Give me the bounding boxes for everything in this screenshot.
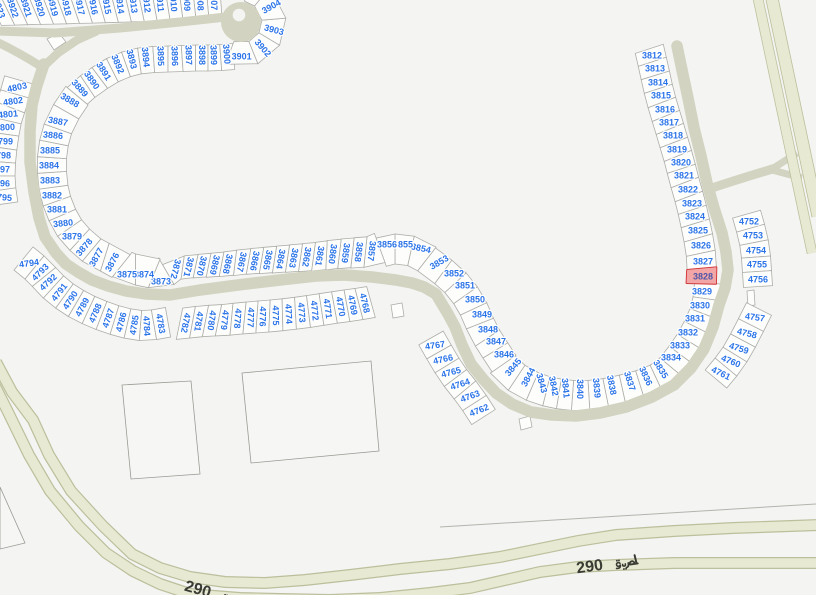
- svg-text:3883: 3883: [40, 175, 60, 185]
- svg-text:4797: 4797: [0, 164, 10, 174]
- svg-text:4773: 4773: [296, 302, 307, 323]
- svg-text:3814: 3814: [648, 77, 668, 87]
- svg-text:3849: 3849: [472, 309, 492, 319]
- svg-text:4784: 4784: [141, 316, 152, 337]
- svg-text:4753: 4753: [743, 230, 763, 240]
- svg-text:4795: 4795: [0, 191, 12, 203]
- svg-text:4752: 4752: [739, 216, 759, 226]
- svg-text:4778: 4778: [232, 308, 243, 329]
- svg-text:3911: 3911: [154, 0, 166, 12]
- svg-text:3899: 3899: [208, 45, 219, 65]
- svg-text:3856: 3856: [377, 239, 397, 249]
- svg-text:3846: 3846: [494, 349, 514, 359]
- svg-text:3908: 3908: [195, 0, 205, 11]
- svg-text:3886: 3886: [43, 129, 64, 141]
- svg-text:4777: 4777: [245, 307, 256, 327]
- svg-text:3823: 3823: [682, 198, 702, 208]
- svg-text:3901: 3901: [232, 51, 252, 61]
- svg-text:3826: 3826: [691, 240, 711, 250]
- svg-text:3824: 3824: [685, 211, 705, 221]
- svg-text:3829: 3829: [692, 286, 712, 296]
- svg-text:3875: 3875: [117, 269, 137, 279]
- svg-text:3851: 3851: [455, 280, 475, 290]
- svg-text:3817: 3817: [659, 117, 679, 127]
- svg-text:3822: 3822: [678, 184, 698, 194]
- svg-text:4775: 4775: [271, 305, 281, 325]
- svg-text:3881: 3881: [47, 204, 67, 214]
- svg-text:4796: 4796: [0, 178, 10, 189]
- svg-text:4798: 4798: [0, 150, 11, 160]
- svg-text:3848: 3848: [478, 324, 498, 334]
- svg-text:3898: 3898: [197, 45, 207, 65]
- svg-text:4776: 4776: [258, 306, 268, 326]
- svg-text:4754: 4754: [746, 245, 766, 255]
- svg-text:4800: 4800: [0, 122, 15, 133]
- svg-text:3852: 3852: [444, 268, 464, 278]
- svg-text:3895: 3895: [155, 46, 166, 66]
- svg-text:4779: 4779: [219, 309, 231, 330]
- svg-text:3840: 3840: [575, 379, 585, 399]
- svg-text:4772: 4772: [309, 300, 321, 321]
- svg-text:3850: 3850: [465, 294, 485, 304]
- svg-text:3833: 3833: [670, 340, 690, 350]
- svg-text:3847: 3847: [486, 336, 506, 346]
- svg-text:3884: 3884: [39, 160, 59, 170]
- svg-text:4774: 4774: [283, 304, 294, 325]
- svg-text:4801: 4801: [0, 108, 18, 120]
- svg-text:3819: 3819: [667, 144, 687, 154]
- svg-text:3828: 3828: [693, 271, 713, 281]
- svg-text:3880: 3880: [53, 217, 74, 229]
- svg-text:3815: 3815: [651, 90, 671, 100]
- svg-text:3832: 3832: [678, 327, 698, 337]
- svg-text:3825: 3825: [688, 225, 708, 235]
- svg-text:3896: 3896: [169, 46, 180, 66]
- svg-text:3818: 3818: [663, 130, 683, 140]
- svg-text:3885: 3885: [40, 145, 60, 155]
- svg-text:3909: 3909: [182, 0, 193, 11]
- svg-text:3910: 3910: [168, 0, 179, 12]
- svg-text:3907: 3907: [209, 0, 219, 10]
- svg-text:3812: 3812: [642, 50, 662, 60]
- svg-text:3882: 3882: [42, 190, 62, 200]
- svg-text:4799: 4799: [0, 136, 13, 146]
- svg-text:3831: 3831: [685, 313, 705, 323]
- svg-text:3830: 3830: [690, 300, 710, 310]
- svg-text:3894: 3894: [140, 47, 152, 68]
- svg-text:3897: 3897: [183, 45, 194, 65]
- svg-text:3821: 3821: [674, 170, 694, 180]
- svg-text:3813: 3813: [645, 63, 665, 73]
- svg-text:4756: 4756: [748, 274, 768, 284]
- svg-text:3879: 3879: [62, 231, 82, 241]
- svg-text:3839: 3839: [591, 378, 603, 399]
- svg-text:4755: 4755: [747, 259, 767, 269]
- svg-text:3816: 3816: [655, 104, 675, 114]
- svg-text:3841: 3841: [560, 378, 572, 399]
- svg-text:3820: 3820: [671, 157, 691, 167]
- svg-text:3834: 3834: [661, 352, 681, 362]
- svg-text:3827: 3827: [693, 256, 713, 266]
